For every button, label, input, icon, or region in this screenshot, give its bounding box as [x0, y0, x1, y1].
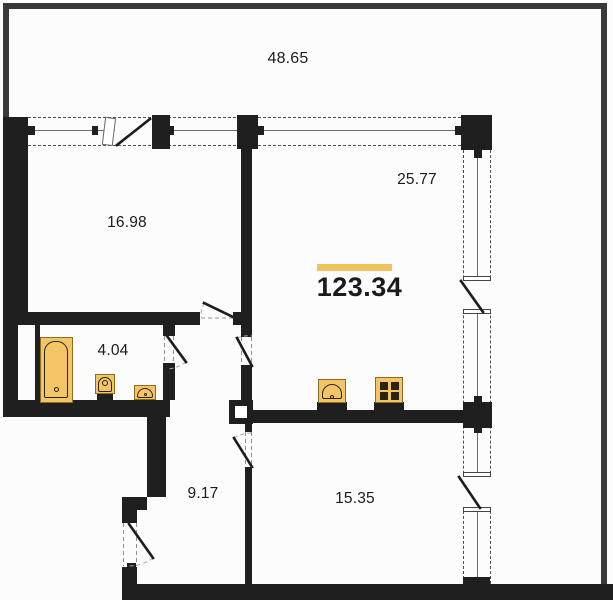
room-area-label-bedroom: 16.98: [87, 214, 167, 232]
kitchen-sink-drain: [330, 395, 334, 399]
bathroom-right-wall-upper: [163, 325, 175, 336]
window-pillar: [237, 115, 258, 149]
washbasin-drain: [144, 393, 147, 396]
bedroom-door-leaf: [204, 303, 233, 317]
stove-burner: [380, 382, 388, 390]
washbasin: [134, 385, 156, 400]
entrance-arc-nub: [127, 563, 136, 567]
entrance-wall-upper: [122, 510, 137, 523]
bathroom-door-opening: [165, 336, 174, 363]
entrance-wall-lower: [122, 567, 137, 584]
floor-plan: 48.65 16.98 25.77 4.04 9.17 15.35 123.34: [0, 0, 613, 600]
entrance-door-opening: [124, 523, 137, 566]
balcony-door-sill: [463, 309, 491, 314]
room-area-label-bathroom: 4.04: [78, 342, 148, 360]
bathroom-top-wall: [18, 312, 200, 325]
left-wall-upper: [3, 117, 28, 317]
terrace-outer-wall-top: [3, 3, 607, 9]
total-area-value: 123.34: [312, 272, 407, 303]
living-door-opening: [242, 337, 252, 365]
bathroom-right-wall-lower: [163, 363, 175, 400]
bedroom-door-arc: [201, 303, 204, 317]
bedroom2-door-leaf: [234, 438, 252, 467]
bedroom2-door-opening: [246, 432, 252, 467]
stove: [375, 377, 403, 403]
window-pillar: [152, 115, 170, 149]
room-area-label-terrace: 48.65: [248, 50, 328, 68]
kitchen-sink: [318, 379, 346, 403]
entrance-door-leaf: [129, 524, 153, 558]
window-pillar: [463, 402, 492, 428]
bathtub: [40, 337, 73, 403]
window-pillar: [463, 577, 490, 584]
outer-wall-bottom: [122, 584, 613, 600]
kitchen-wall: [253, 410, 463, 423]
room-area-label-hallway: 9.17: [168, 485, 238, 503]
window-connector: [28, 126, 35, 135]
window-band-right: [463, 150, 492, 584]
window-connector: [92, 126, 98, 135]
window-connector: [474, 150, 482, 158]
bathroom-door-leaf: [167, 336, 186, 362]
bathroom-bottom-wall: [3, 400, 170, 417]
balcony-door-sill: [463, 472, 491, 477]
central-wall-mid: [241, 365, 252, 402]
room-area-label-bedroom-2: 15.35: [315, 490, 395, 508]
ventilation-shaft: [229, 400, 253, 424]
window-dash-line: [463, 150, 464, 584]
step-wall-horizontal: [122, 497, 147, 510]
room-area-label-living-kitchen: 25.77: [377, 171, 457, 189]
balcony-door-gap: [463, 281, 492, 309]
balcony-door-sill: [463, 276, 491, 281]
stove-burner: [391, 382, 399, 390]
window-dash-line: [490, 150, 491, 584]
bedroom2-door-arc: [234, 433, 252, 438]
toilet: [95, 374, 115, 394]
central-wall-lower-a: [245, 424, 252, 432]
stove-base: [374, 402, 404, 411]
balcony-door-sill: [463, 507, 491, 512]
central-wall-lower-b: [245, 467, 252, 584]
total-area-highlight: [317, 264, 392, 271]
bathtub-drain: [54, 387, 59, 392]
terrace-outer-wall-right: [601, 3, 607, 589]
toilet-flush: [102, 380, 108, 386]
balcony-door-gap: [463, 477, 492, 507]
window-connector: [258, 126, 264, 135]
door-swing-layer: [0, 0, 613, 600]
step-wall-vertical: [147, 417, 166, 497]
stove-burner: [391, 392, 399, 400]
window-band-top: [28, 117, 461, 147]
window-glass-line: [477, 150, 478, 584]
living-door-leaf: [237, 338, 252, 366]
central-wall-upper: [241, 147, 252, 337]
kitchen-sink-base: [317, 402, 347, 411]
corner-pillar: [461, 115, 492, 150]
terrace-outer-wall-left: [3, 3, 9, 117]
terrace-door-gap: [115, 121, 152, 143]
stove-burner: [380, 392, 388, 400]
